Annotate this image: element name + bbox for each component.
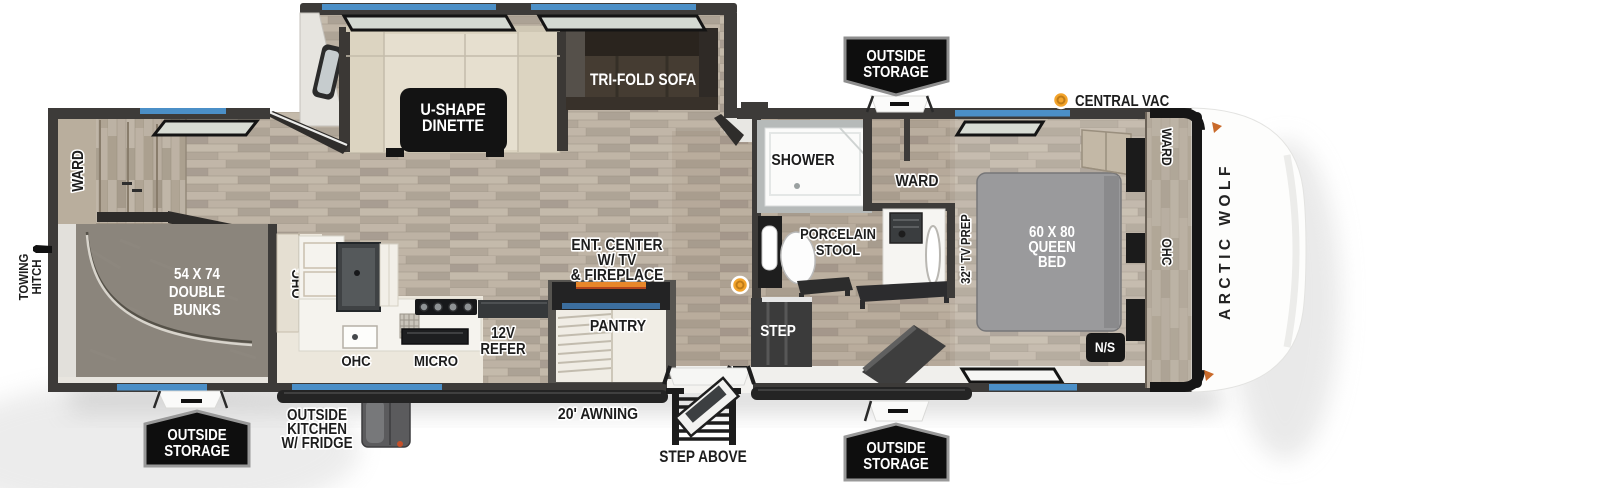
svg-text:STOOL: STOOL xyxy=(816,241,861,258)
svg-text:OHC: OHC xyxy=(1159,238,1175,266)
svg-text:32" TV PREP: 32" TV PREP xyxy=(958,214,973,284)
svg-text:OUTSIDE: OUTSIDE xyxy=(167,427,227,444)
svg-text:STORAGE: STORAGE xyxy=(863,456,929,473)
svg-text:STEP: STEP xyxy=(760,323,796,340)
svg-text:HITCH: HITCH xyxy=(29,259,44,294)
svg-text:20' AWNING: 20' AWNING xyxy=(558,405,638,423)
svg-text:12V: 12V xyxy=(491,325,515,342)
svg-text:SHOWER: SHOWER xyxy=(771,151,834,169)
svg-text:OUTSIDE: OUTSIDE xyxy=(866,440,926,457)
svg-text:BUNKS: BUNKS xyxy=(173,302,221,319)
svg-text:WARD: WARD xyxy=(1159,128,1175,166)
svg-text:WARD: WARD xyxy=(895,172,938,190)
svg-text:DOUBLE: DOUBLE xyxy=(169,284,226,301)
svg-text:W/ FRIDGE: W/ FRIDGE xyxy=(281,435,352,452)
svg-text:STORAGE: STORAGE xyxy=(164,443,230,460)
svg-text:TRI-FOLD SOFA: TRI-FOLD SOFA xyxy=(590,71,696,89)
svg-text:PANTRY: PANTRY xyxy=(590,317,646,335)
svg-text:54 X 74: 54 X 74 xyxy=(174,266,220,283)
svg-text:REFER: REFER xyxy=(480,341,526,358)
svg-text:STORAGE: STORAGE xyxy=(863,64,929,81)
svg-text:WARD: WARD xyxy=(70,150,87,192)
svg-text:& FIREPLACE: & FIREPLACE xyxy=(571,266,664,284)
svg-text:OHC: OHC xyxy=(341,352,370,369)
svg-text:MICRO: MICRO xyxy=(414,352,458,369)
svg-text:BED: BED xyxy=(1038,254,1066,271)
svg-text:CENTRAL VAC: CENTRAL VAC xyxy=(1075,93,1170,110)
svg-text:PORCELAIN: PORCELAIN xyxy=(800,225,876,242)
svg-text:ARCTIC WOLF: ARCTIC WOLF xyxy=(1217,162,1234,320)
svg-text:OUTSIDE: OUTSIDE xyxy=(866,48,926,65)
svg-text:DINETTE: DINETTE xyxy=(422,117,484,135)
svg-text:N/S: N/S xyxy=(1095,339,1116,355)
svg-text:STEP ABOVE: STEP ABOVE xyxy=(659,448,746,466)
